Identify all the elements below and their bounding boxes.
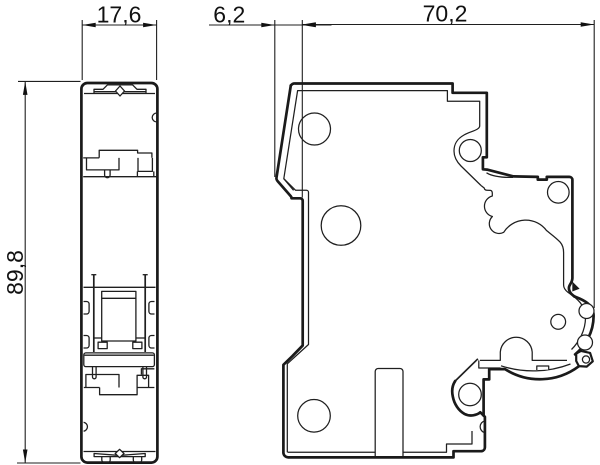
- svg-text:17,6: 17,6: [97, 2, 142, 28]
- svg-text:70,2: 70,2: [423, 1, 468, 27]
- svg-text:89,8: 89,8: [2, 250, 28, 295]
- svg-text:6,2: 6,2: [213, 2, 245, 28]
